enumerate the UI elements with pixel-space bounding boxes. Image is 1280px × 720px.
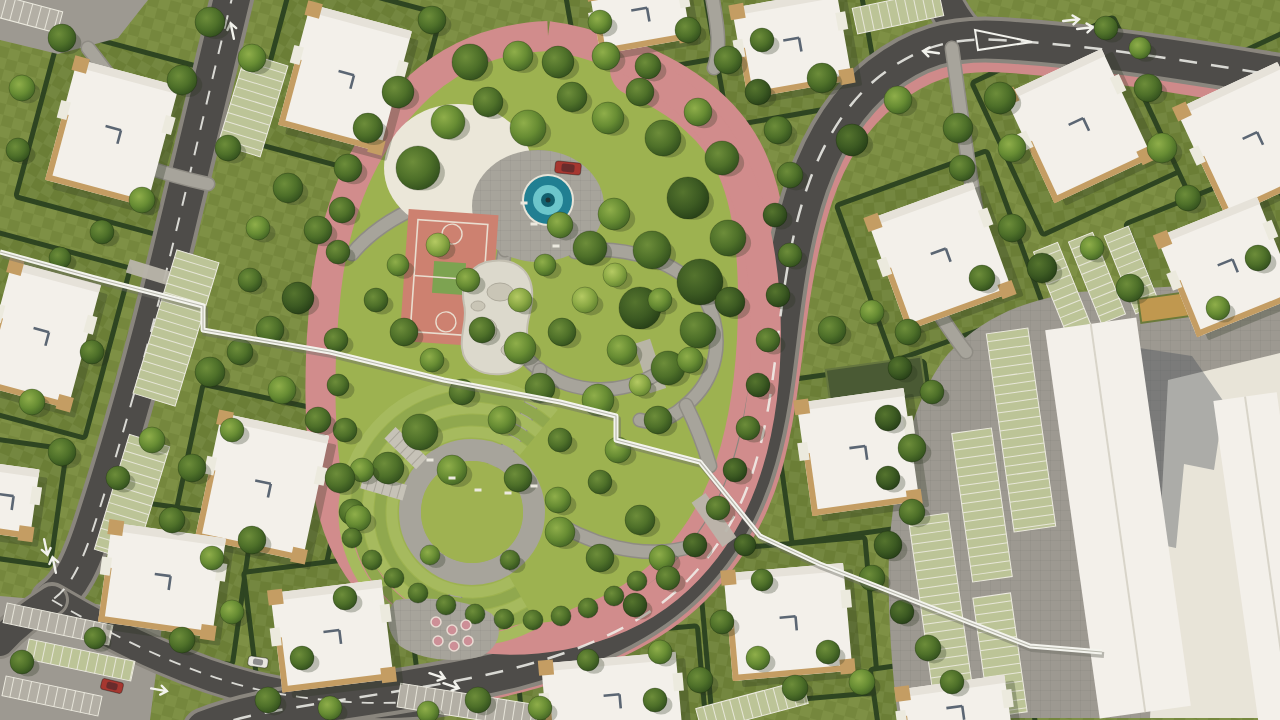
tree xyxy=(710,610,734,634)
tree xyxy=(452,44,488,80)
tree xyxy=(473,87,503,117)
tree xyxy=(84,627,106,649)
shrub xyxy=(494,609,514,629)
masterplan-render xyxy=(0,0,1280,720)
tree xyxy=(220,600,244,624)
tree xyxy=(402,414,438,450)
tree xyxy=(751,569,773,591)
corner-notch xyxy=(538,660,554,676)
corner-notch xyxy=(380,667,397,684)
tree xyxy=(545,487,571,513)
tree xyxy=(333,586,357,610)
tree xyxy=(644,406,672,434)
shrub xyxy=(384,568,404,588)
tree xyxy=(19,389,45,415)
tree xyxy=(875,405,901,431)
picnic-table xyxy=(447,625,457,635)
tree xyxy=(898,434,926,462)
tree xyxy=(633,231,671,269)
tree xyxy=(504,464,532,492)
tree xyxy=(736,416,760,440)
tree xyxy=(684,98,712,126)
shrub xyxy=(627,571,647,591)
tree xyxy=(723,458,747,482)
tree xyxy=(940,670,964,694)
tree xyxy=(364,288,388,312)
tree xyxy=(777,162,803,188)
shrub xyxy=(436,595,456,615)
tree xyxy=(745,79,771,105)
tree xyxy=(635,53,661,79)
tree xyxy=(705,141,739,175)
tree xyxy=(643,688,667,712)
bench xyxy=(475,489,482,492)
tree xyxy=(876,466,900,490)
tree xyxy=(255,687,281,713)
entrance-canopy xyxy=(672,673,684,692)
tree xyxy=(1206,296,1230,320)
tree xyxy=(645,120,681,156)
tree xyxy=(1080,236,1104,260)
tree xyxy=(390,318,418,346)
tree xyxy=(763,203,787,227)
bench xyxy=(531,223,538,226)
corner-notch xyxy=(894,685,911,702)
tree xyxy=(382,76,414,108)
picnic-table xyxy=(449,641,459,651)
tree xyxy=(508,288,532,312)
tree xyxy=(816,640,840,664)
tree xyxy=(680,312,716,348)
tree xyxy=(592,102,624,134)
tree xyxy=(588,470,612,494)
tree xyxy=(623,593,647,617)
tree xyxy=(325,463,355,493)
shrub xyxy=(551,606,571,626)
tree xyxy=(592,42,620,70)
tree xyxy=(159,507,185,533)
tree xyxy=(1116,274,1144,302)
tree xyxy=(510,110,546,146)
tree xyxy=(683,533,707,557)
corner-notch xyxy=(290,547,308,565)
tree xyxy=(895,319,921,345)
tree xyxy=(626,78,654,106)
tree xyxy=(334,154,362,182)
tree xyxy=(200,546,224,570)
tree xyxy=(807,63,837,93)
tree xyxy=(329,197,355,223)
tree xyxy=(9,75,35,101)
picnic-table xyxy=(431,617,441,627)
bench xyxy=(553,245,560,248)
shrub xyxy=(604,586,624,606)
tree xyxy=(818,316,846,344)
tree xyxy=(750,28,774,52)
car-glass xyxy=(561,163,575,172)
tree xyxy=(169,627,195,653)
tree xyxy=(849,669,875,695)
tree xyxy=(528,696,552,720)
tree xyxy=(195,357,225,387)
tree xyxy=(888,356,912,380)
tree xyxy=(534,254,556,276)
tree xyxy=(178,454,206,482)
tree xyxy=(547,212,573,238)
fountain-jet xyxy=(546,198,551,203)
tree xyxy=(420,545,440,565)
masterplan-aerial-view xyxy=(0,0,1280,720)
tree xyxy=(488,406,516,434)
tree xyxy=(746,646,770,670)
tree xyxy=(500,550,520,570)
tree xyxy=(746,373,770,397)
tree xyxy=(417,701,439,720)
picnic-table xyxy=(461,620,471,630)
tree xyxy=(586,544,614,572)
tree xyxy=(548,318,576,346)
tree xyxy=(715,287,745,317)
tree xyxy=(167,65,197,95)
tree xyxy=(648,288,672,312)
corner-notch xyxy=(720,569,736,585)
tree xyxy=(195,7,225,37)
shrub xyxy=(523,610,543,630)
bench xyxy=(531,485,538,488)
shrub xyxy=(342,528,362,548)
shrub xyxy=(578,598,598,618)
tree xyxy=(969,265,995,291)
tree xyxy=(456,268,480,292)
tree xyxy=(465,687,491,713)
corner-notch xyxy=(793,398,810,415)
tree xyxy=(860,300,884,324)
car xyxy=(247,656,268,669)
entrance-canopy xyxy=(840,589,852,608)
tree xyxy=(764,116,792,144)
tree xyxy=(920,380,944,404)
tree xyxy=(282,282,314,314)
tree xyxy=(588,10,612,34)
tree xyxy=(1245,245,1271,271)
tree xyxy=(215,135,241,161)
tree xyxy=(874,531,902,559)
tree xyxy=(324,328,348,352)
tree xyxy=(396,146,440,190)
tree xyxy=(998,134,1026,162)
tree xyxy=(687,667,713,693)
tree xyxy=(353,113,383,143)
tree xyxy=(80,340,104,364)
tree xyxy=(246,216,270,240)
tree xyxy=(345,505,371,531)
tree xyxy=(756,328,780,352)
tree xyxy=(714,46,742,74)
tree xyxy=(677,347,703,373)
shrub xyxy=(408,583,428,603)
tree xyxy=(548,428,572,452)
tree xyxy=(238,526,266,554)
corner-notch xyxy=(107,519,124,536)
tree xyxy=(573,231,607,265)
tree xyxy=(418,6,446,34)
corner-notch xyxy=(18,525,35,542)
tree xyxy=(333,418,357,442)
tree xyxy=(318,696,342,720)
tree xyxy=(603,263,627,287)
tree xyxy=(782,675,808,701)
tree xyxy=(542,46,574,78)
tree xyxy=(6,138,30,162)
tree xyxy=(1094,16,1118,40)
tree xyxy=(48,24,76,52)
bench xyxy=(449,477,456,480)
tree xyxy=(1129,37,1151,59)
tree xyxy=(577,649,599,671)
tree xyxy=(220,418,244,442)
tree xyxy=(998,214,1026,242)
tree xyxy=(675,17,701,43)
tree xyxy=(305,407,331,433)
apartment-building xyxy=(92,519,235,646)
tree xyxy=(836,124,868,156)
tree xyxy=(899,499,925,525)
tree xyxy=(943,113,973,143)
tree xyxy=(503,41,533,71)
tree xyxy=(273,173,303,203)
tree xyxy=(629,374,651,396)
tree xyxy=(557,82,587,112)
bench xyxy=(427,459,434,462)
tree xyxy=(656,566,680,590)
tree xyxy=(469,317,495,343)
tree xyxy=(426,233,450,257)
bench xyxy=(505,492,512,495)
tree xyxy=(48,438,76,466)
apartment-building xyxy=(718,559,862,688)
tree xyxy=(734,534,756,556)
shrub xyxy=(362,550,382,570)
tree xyxy=(1027,253,1057,283)
tree xyxy=(648,640,672,664)
corner-notch xyxy=(728,3,745,20)
tree xyxy=(1134,74,1162,102)
tree xyxy=(268,376,296,404)
tree xyxy=(304,216,332,244)
tree xyxy=(884,86,912,114)
picnic-table xyxy=(463,636,473,646)
tree xyxy=(1147,133,1177,163)
tree xyxy=(387,254,409,276)
tree xyxy=(139,427,165,453)
bench xyxy=(521,202,528,205)
tree xyxy=(504,332,536,364)
tree xyxy=(667,177,709,219)
corner-notch xyxy=(267,589,284,606)
tree xyxy=(238,44,266,72)
tree xyxy=(1175,185,1201,211)
skate-bowl xyxy=(471,301,485,311)
tree xyxy=(766,283,790,307)
tree xyxy=(545,517,575,547)
tree xyxy=(431,105,465,139)
picnic-table xyxy=(433,636,443,646)
tree xyxy=(625,505,655,535)
corner-notch xyxy=(200,624,217,641)
tree xyxy=(949,155,975,181)
tree xyxy=(129,187,155,213)
tree xyxy=(420,348,444,372)
tree xyxy=(572,287,598,313)
tree xyxy=(598,198,630,230)
tree xyxy=(778,243,802,267)
tree xyxy=(915,635,941,661)
tree xyxy=(90,220,114,244)
tree xyxy=(10,650,34,674)
tree xyxy=(710,220,746,256)
tree xyxy=(238,268,262,292)
tree xyxy=(984,82,1016,114)
tree xyxy=(607,335,637,365)
tree xyxy=(437,455,467,485)
tree xyxy=(290,646,314,670)
tree xyxy=(106,466,130,490)
tree xyxy=(327,374,349,396)
car xyxy=(554,161,581,176)
